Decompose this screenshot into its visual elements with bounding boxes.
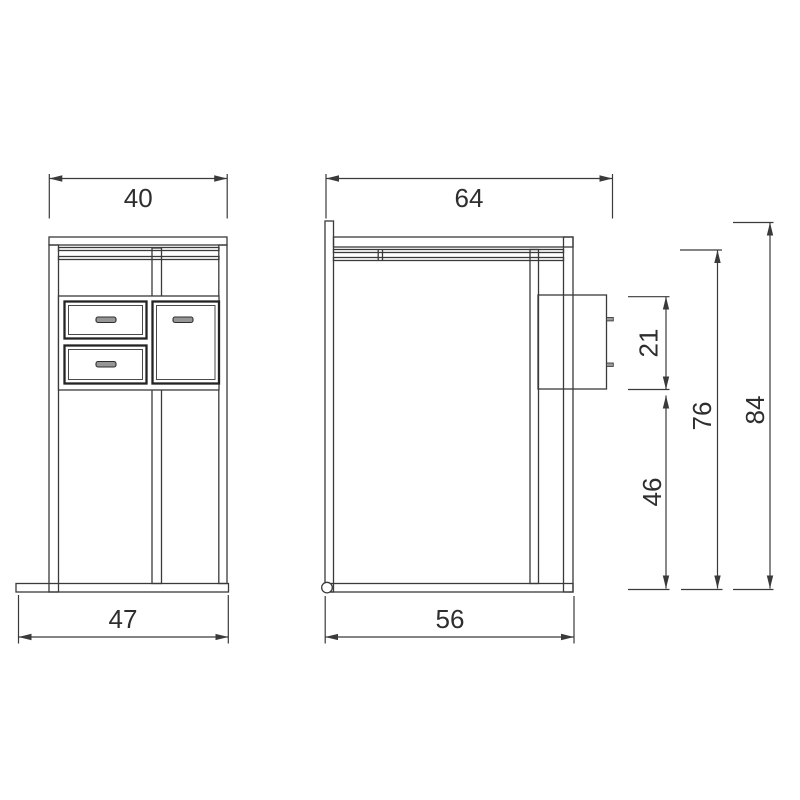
front-view [16, 237, 229, 592]
side-right-post [564, 237, 574, 592]
dim-label-side-base-width: 56 [436, 604, 465, 634]
dim-label-lower-section-height: 46 [637, 478, 667, 507]
mount-pin-bottom [607, 363, 614, 366]
dim-total-height: 84 [733, 223, 774, 590]
drawer-2-handle [96, 362, 116, 368]
side-mount-box [538, 295, 607, 389]
technical-drawing-canvas: 40 47 64 [0, 0, 800, 800]
dim-upper-box-height: 21 [628, 297, 670, 390]
front-lower-rail [59, 257, 220, 260]
dim-label-upper-box-height: 21 [634, 329, 664, 358]
door-panel [153, 302, 220, 384]
side-top-bar [334, 237, 574, 247]
door-handle [173, 317, 193, 323]
side-caster-circle [322, 582, 333, 593]
dim-label-side-top-width: 64 [455, 183, 484, 213]
dim-frame-height: 76 [680, 250, 723, 590]
mount-pin-top [607, 318, 614, 321]
dim-label-frame-height: 76 [687, 402, 717, 431]
side-left-post [325, 221, 334, 592]
drawer-1-handle [96, 317, 116, 323]
side-view [322, 221, 614, 593]
side-upper-rail [334, 250, 564, 253]
side-bottom-bar [331, 584, 573, 593]
front-left-leg [49, 245, 59, 592]
dim-lower-section-height: 46 [628, 396, 670, 590]
drawing-svg: 40 47 64 [0, 0, 800, 800]
side-inner-bar [530, 250, 539, 584]
front-base-plate [16, 584, 229, 593]
side-lower-rail [334, 258, 564, 261]
dim-label-front-top-width: 40 [124, 183, 153, 213]
front-top-bar [49, 237, 227, 245]
dim-front-top-width: 40 [49, 174, 227, 219]
dim-front-base-width: 47 [19, 595, 229, 644]
dim-side-base-width: 56 [325, 596, 574, 644]
dim-side-top-width: 64 [326, 174, 613, 219]
dim-label-total-height: 84 [740, 396, 770, 425]
front-right-leg [219, 245, 227, 584]
dim-label-front-base-width: 47 [109, 604, 138, 634]
front-upper-rail [59, 248, 220, 251]
